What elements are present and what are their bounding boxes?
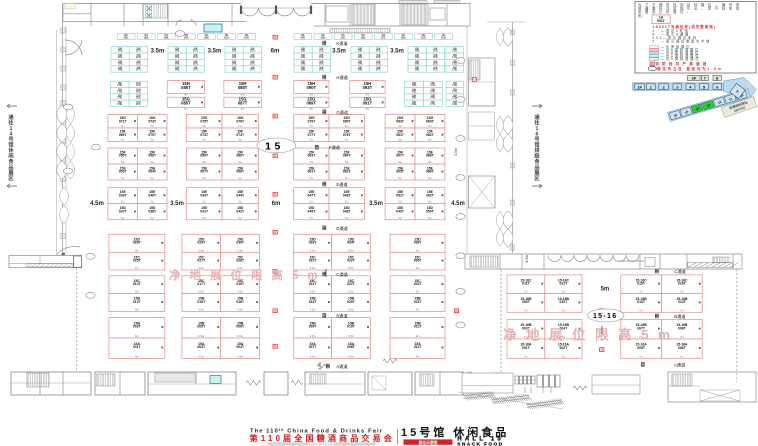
svg-text:7m: 7m: [524, 290, 528, 294]
svg-text:5m: 5m: [310, 124, 314, 128]
svg-text:7m: 7m: [680, 354, 684, 358]
svg-text:5m: 5m: [345, 160, 349, 164]
svg-text:038T: 038T: [148, 209, 157, 213]
svg-text:170L: 170L: [414, 51, 420, 53]
svg-text:174L: 174L: [175, 62, 181, 65]
svg-text:163L: 163L: [320, 37, 326, 39]
svg-text:H通道: H通道: [336, 74, 348, 81]
svg-text:009T: 009T: [309, 325, 318, 329]
svg-text:5m: 5m: [398, 200, 402, 204]
svg-text:045T: 045T: [308, 209, 317, 213]
svg-text:6.5m: 6.5m: [237, 290, 243, 294]
svg-text:189L: 189L: [204, 37, 210, 39]
svg-text:031T: 031T: [309, 259, 318, 263]
svg-text:7m: 7m: [524, 354, 528, 358]
svg-text:A通道: A通道: [674, 362, 686, 369]
svg-text:消防栓井严禁遮挡: 消防栓井严禁遮挡: [655, 61, 709, 66]
svg-text:026T: 026T: [133, 241, 142, 245]
svg-text:5m: 5m: [345, 138, 349, 142]
svg-text:净地展位限高5m: 净地展位限高5m: [169, 268, 327, 282]
svg-text:5m: 5m: [398, 124, 402, 128]
svg-text:6m: 6m: [241, 92, 245, 96]
svg-text:9m: 9m: [416, 334, 420, 338]
svg-text:036T: 036T: [414, 241, 423, 245]
svg-text:176L: 176L: [117, 104, 123, 106]
svg-text:079T: 079T: [308, 119, 317, 123]
svg-text:041T: 041T: [200, 209, 209, 213]
svg-text:6m: 6m: [202, 124, 206, 128]
svg-text:3.5m: 3.5m: [208, 49, 222, 55]
svg-text:6.5m: 6.5m: [310, 248, 316, 252]
svg-text:083T: 083T: [396, 119, 405, 123]
svg-text:044T: 044T: [236, 193, 245, 197]
svg-text:049T: 049T: [396, 209, 405, 213]
svg-text:181L: 181L: [123, 37, 129, 39]
svg-text:082T: 082T: [426, 133, 435, 137]
svg-text:9m: 9m: [135, 355, 139, 359]
svg-text:9m: 9m: [135, 290, 139, 294]
svg-text:042T: 042T: [236, 209, 245, 213]
svg-text:净地展位限高5m: 净地展位限高5m: [503, 327, 680, 343]
svg-text:6m: 6m: [366, 92, 370, 96]
svg-text:9m: 9m: [416, 248, 420, 252]
svg-text:053T: 053T: [119, 170, 128, 174]
svg-text:085T: 085T: [181, 101, 191, 106]
svg-text:176L: 176L: [175, 70, 181, 72]
svg-text:7m: 7m: [562, 290, 566, 294]
svg-text:C通道: C通道: [336, 271, 348, 278]
svg-text:9m: 9m: [416, 355, 420, 359]
svg-text:6m: 6m: [272, 201, 281, 207]
svg-text:173L: 173L: [136, 91, 142, 93]
svg-text:173L: 173L: [376, 57, 382, 59]
svg-text:009T: 009T: [522, 300, 531, 304]
svg-text:7m: 7m: [562, 308, 566, 312]
svg-text:176L: 176L: [300, 70, 306, 72]
svg-text:173L: 173L: [136, 57, 142, 59]
svg-text:002T: 002T: [133, 325, 142, 329]
svg-text:6.5m: 6.5m: [310, 355, 316, 359]
svg-text:5m: 5m: [121, 138, 125, 142]
svg-text:173L: 173L: [319, 57, 325, 59]
svg-text:174L: 174L: [357, 62, 363, 65]
svg-text:075T: 075T: [200, 119, 209, 123]
svg-text:176L: 176L: [411, 104, 417, 106]
svg-text:183L: 183L: [144, 37, 150, 39]
svg-text:091T: 091T: [363, 101, 373, 106]
svg-text:175L: 175L: [430, 98, 436, 100]
svg-text:3.5m: 3.5m: [454, 148, 458, 156]
svg-text:039T: 039T: [119, 193, 128, 197]
svg-text:051T: 051T: [396, 193, 405, 197]
svg-text:6.5m: 6.5m: [237, 334, 243, 338]
svg-text:6.5m: 6.5m: [348, 290, 354, 294]
svg-text:012T: 012T: [414, 325, 423, 329]
svg-text:5m: 5m: [150, 200, 154, 204]
svg-text:011T: 011T: [414, 345, 422, 349]
svg-text:172L: 172L: [300, 57, 306, 59]
svg-text:172L: 172L: [357, 57, 363, 59]
svg-text:172L: 172L: [118, 57, 124, 59]
svg-text:6.5m: 6.5m: [198, 248, 204, 252]
svg-text:C通道: C通道: [674, 268, 686, 275]
svg-text:170L: 170L: [452, 51, 458, 53]
svg-text:177L: 177L: [430, 104, 436, 106]
svg-text:173L: 173L: [433, 57, 439, 59]
svg-text:6m: 6m: [271, 49, 280, 55]
svg-text:054T: 054T: [148, 170, 157, 174]
svg-text:171L: 171L: [193, 51, 199, 53]
svg-text:7m: 7m: [680, 308, 684, 312]
svg-text:069T: 069T: [119, 133, 128, 137]
svg-text:176L: 176L: [118, 70, 124, 72]
svg-text:5m: 5m: [150, 124, 154, 128]
svg-text:7m: 7m: [639, 354, 643, 358]
svg-text:7m: 7m: [639, 290, 643, 294]
svg-text:6m: 6m: [202, 138, 206, 142]
svg-text:175L: 175L: [193, 63, 199, 65]
svg-text:展位内立柱 直径均为1.5m: 展位内立柱 直径均为1.5m: [656, 66, 723, 71]
svg-text:089T: 089T: [307, 101, 317, 106]
svg-text:001T: 001T: [657, 19, 665, 23]
svg-text:023T: 023T: [414, 300, 423, 304]
svg-text:055T: 055T: [119, 154, 128, 158]
svg-text:012T: 012T: [560, 282, 569, 286]
svg-text:024T: 024T: [414, 282, 423, 286]
svg-text:177L: 177L: [193, 70, 199, 72]
svg-text:090T: 090T: [307, 85, 317, 90]
svg-text:172L: 172L: [175, 57, 181, 59]
svg-text:056T: 056T: [148, 154, 157, 158]
svg-text:6m: 6m: [184, 107, 188, 111]
svg-text:153L: 153L: [421, 37, 427, 39]
svg-text:071T: 071T: [119, 119, 128, 123]
svg-text:9m: 9m: [416, 266, 420, 270]
svg-text:6m: 6m: [366, 107, 370, 111]
svg-text:001T: 001T: [522, 346, 531, 350]
svg-text:5m: 5m: [121, 200, 125, 204]
svg-text:177L: 177L: [433, 70, 439, 72]
svg-text:067T: 067T: [396, 154, 405, 158]
svg-text:5m: 5m: [345, 124, 349, 128]
svg-text:016T: 016T: [678, 282, 687, 286]
svg-text:177L: 177L: [136, 70, 142, 72]
svg-text:170L: 170L: [300, 51, 306, 53]
svg-text:062T: 062T: [343, 170, 352, 174]
svg-text:5m: 5m: [310, 160, 314, 164]
svg-text:013T: 013T: [133, 300, 142, 304]
svg-text:177L: 177L: [250, 70, 256, 72]
svg-text:171L: 171L: [433, 51, 439, 53]
svg-text:3.5m: 3.5m: [369, 201, 383, 207]
svg-text:080T: 080T: [343, 119, 352, 123]
svg-text:022T: 022T: [347, 282, 356, 286]
svg-text:174L: 174L: [232, 62, 238, 65]
svg-text:077T: 077T: [308, 133, 317, 137]
svg-text:173L: 173L: [193, 57, 199, 59]
svg-text:6.5m: 6.5m: [348, 248, 354, 252]
svg-text:047T: 047T: [308, 193, 317, 197]
svg-text:019T: 019T: [309, 300, 318, 304]
svg-text:6m: 6m: [202, 200, 206, 204]
svg-text:4.5m: 4.5m: [318, 362, 322, 370]
svg-text:174L: 174L: [118, 62, 124, 65]
svg-text:187L: 187L: [184, 37, 190, 39]
svg-text:3.5m: 3.5m: [324, 269, 328, 277]
svg-text:3.5m: 3.5m: [151, 49, 165, 55]
svg-text:5m: 5m: [428, 216, 432, 220]
svg-text:6m: 6m: [202, 216, 206, 220]
svg-text:175L: 175L: [376, 63, 382, 65]
svg-text:048T: 048T: [343, 193, 352, 197]
svg-text:175L: 175L: [433, 63, 439, 65]
svg-text:5m: 5m: [150, 160, 154, 164]
svg-text:191L: 191L: [224, 37, 230, 39]
svg-text:1F: 1F: [637, 84, 642, 89]
svg-text:B通道: B通道: [336, 313, 348, 320]
svg-text:T —表示展位类型为半地: T —表示展位类型为半地: [652, 39, 711, 44]
svg-text:4.5m: 4.5m: [451, 201, 465, 207]
svg-text:060T: 060T: [236, 154, 245, 158]
svg-text:区: 区: [8, 174, 14, 182]
svg-text:174L: 174L: [300, 62, 306, 65]
svg-text:185L: 185L: [164, 37, 170, 39]
svg-text:177L: 177L: [136, 104, 142, 106]
svg-text:5m: 5m: [121, 160, 125, 164]
svg-text:176L: 176L: [357, 70, 363, 72]
svg-text:171L: 171L: [136, 85, 142, 87]
svg-text:029T: 029T: [197, 241, 206, 245]
svg-text:7m: 7m: [524, 308, 528, 312]
svg-text:5m: 5m: [428, 160, 432, 164]
svg-text:015T: 015T: [197, 300, 206, 304]
svg-text:5m: 5m: [310, 216, 314, 220]
svg-text:171L: 171L: [319, 51, 325, 53]
svg-text:015T: 015T: [637, 282, 646, 286]
svg-text:052T: 052T: [426, 193, 435, 197]
svg-text:175L: 175L: [136, 98, 142, 100]
svg-text:193L: 193L: [244, 37, 250, 39]
svg-text:6.5m: 6.5m: [237, 248, 243, 252]
svg-text:区: 区: [534, 174, 540, 182]
svg-text:6.5m: 6.5m: [198, 334, 204, 338]
svg-text:059T: 059T: [200, 154, 209, 158]
svg-text:010T: 010T: [347, 325, 356, 329]
svg-text:9m: 9m: [416, 308, 420, 312]
svg-text:5m: 5m: [310, 176, 314, 180]
svg-text:3.5m: 3.5m: [390, 49, 404, 55]
svg-text:5m: 5m: [345, 216, 349, 220]
svg-text:174L: 174L: [117, 97, 123, 100]
svg-text:9m: 9m: [135, 248, 139, 252]
svg-text:006T: 006T: [678, 346, 687, 350]
svg-text:011T: 011T: [522, 282, 530, 286]
svg-text:—为D类标准展位: —为D类标准展位: [661, 56, 701, 61]
svg-text:7m: 7m: [562, 354, 566, 358]
svg-text:G通道: G通道: [336, 109, 348, 116]
svg-text:018T: 018T: [236, 282, 245, 286]
svg-text:6.5m: 6.5m: [310, 308, 316, 312]
svg-text:177L: 177L: [319, 70, 325, 72]
svg-text:070T: 070T: [148, 133, 157, 137]
svg-text:5m: 5m: [398, 160, 402, 164]
svg-text:171L: 171L: [250, 51, 256, 53]
svg-text:A通道: A通道: [336, 363, 348, 370]
svg-text:E通道: E通道: [336, 181, 348, 188]
svg-text:6.5m: 6.5m: [198, 355, 204, 359]
svg-text:6m: 6m: [184, 92, 188, 96]
svg-text:6m: 6m: [238, 200, 242, 204]
svg-text:7m: 7m: [680, 335, 684, 339]
svg-text:066T: 066T: [426, 170, 435, 174]
svg-text:084T: 084T: [426, 119, 435, 123]
svg-text:5m: 5m: [345, 176, 349, 180]
svg-text:165L: 165L: [300, 37, 306, 39]
svg-text:SNACK FOOD: SNACK FOOD: [457, 442, 503, 446]
svg-text:172L: 172L: [452, 63, 458, 65]
svg-text:6m: 6m: [309, 92, 313, 96]
svg-text:025T: 025T: [133, 259, 142, 263]
svg-text:064T: 064T: [343, 154, 352, 158]
svg-text:035T: 035T: [414, 259, 423, 263]
svg-text:6m: 6m: [202, 176, 206, 180]
svg-text:065T: 065T: [396, 170, 405, 174]
svg-text:6.5m: 6.5m: [348, 334, 354, 338]
svg-text:034T: 034T: [347, 241, 356, 245]
svg-text:174L: 174L: [411, 97, 417, 100]
svg-text:173L: 173L: [250, 57, 256, 59]
svg-text:172L: 172L: [411, 91, 417, 93]
svg-text:088T: 088T: [238, 85, 248, 90]
svg-text:D通道: D通道: [336, 225, 348, 232]
svg-text:171L: 171L: [430, 85, 436, 87]
svg-text:5m: 5m: [150, 138, 154, 142]
svg-text:K通道: K通道: [336, 40, 348, 47]
svg-text:5m: 5m: [398, 176, 402, 180]
svg-text:6.5m: 6.5m: [348, 355, 354, 359]
svg-text:172L: 172L: [232, 57, 238, 59]
svg-text:005T: 005T: [197, 325, 206, 329]
svg-text:177L: 177L: [376, 70, 382, 72]
svg-text:170L: 170L: [175, 51, 181, 53]
svg-text:5m: 5m: [398, 216, 402, 220]
svg-text:5m: 5m: [121, 124, 125, 128]
svg-text:5m: 5m: [310, 138, 314, 142]
svg-text:3.5m: 3.5m: [170, 201, 184, 207]
svg-text:004T: 004T: [236, 345, 245, 349]
svg-text:6.5m: 6.5m: [310, 334, 316, 338]
svg-text:006T: 006T: [236, 325, 245, 329]
svg-text:175L: 175L: [250, 63, 256, 65]
svg-text:5m: 5m: [345, 200, 349, 204]
svg-text:093T: 093T: [363, 85, 373, 90]
svg-text:175L: 175L: [319, 63, 325, 65]
svg-text:173L: 173L: [430, 91, 436, 93]
svg-text:170L: 170L: [232, 51, 238, 53]
svg-text:中国西部国际博览城: 中国西部国际博览城: [307, 441, 334, 446]
svg-text:3.5m: 3.5m: [332, 49, 346, 55]
svg-text:074T: 074T: [236, 133, 245, 137]
svg-text:061T: 061T: [308, 170, 317, 174]
svg-text:076T: 076T: [236, 119, 245, 123]
svg-text:9m: 9m: [135, 308, 139, 312]
svg-text:032T: 032T: [347, 259, 356, 263]
svg-text:4.5m: 4.5m: [90, 201, 104, 207]
svg-text:170L: 170L: [117, 85, 123, 87]
svg-text:173L: 173L: [452, 70, 458, 72]
svg-text:6m: 6m: [238, 160, 242, 164]
svg-text:151L: 151L: [441, 37, 447, 39]
svg-text:6m: 6m: [309, 107, 313, 111]
svg-text:155L: 155L: [401, 37, 407, 39]
svg-text:008T: 008T: [347, 345, 356, 349]
svg-text:9m: 9m: [416, 290, 420, 294]
svg-text:到要到达的展位。: 到要到达的展位。: [638, 9, 694, 14]
svg-text:5m: 5m: [428, 138, 432, 142]
svg-text:046T: 046T: [343, 209, 352, 213]
svg-text:172L: 172L: [414, 57, 420, 59]
svg-text:057T: 057T: [200, 170, 209, 174]
svg-text:5m: 5m: [121, 216, 125, 220]
svg-text:159L: 159L: [361, 37, 367, 39]
svg-text:028T: 028T: [236, 259, 245, 263]
svg-text:020T: 020T: [347, 300, 356, 304]
svg-text:170L: 170L: [118, 51, 124, 53]
svg-text:6m: 6m: [238, 138, 242, 142]
svg-text:5m: 5m: [310, 200, 314, 204]
svg-text:9m: 9m: [135, 334, 139, 338]
svg-text:073T: 073T: [200, 133, 209, 137]
svg-text:030T: 030T: [236, 241, 245, 245]
svg-text:073T: 073T: [148, 119, 157, 123]
svg-text:078T: 078T: [343, 133, 352, 137]
svg-text:6m: 6m: [238, 124, 242, 128]
svg-text:001T: 001T: [133, 345, 142, 349]
svg-text:171L: 171L: [452, 91, 458, 93]
svg-text:4.5m: 4.5m: [525, 255, 529, 263]
svg-text:171L: 171L: [376, 51, 382, 53]
svg-text:010T: 010T: [560, 300, 569, 304]
svg-text:6m: 6m: [238, 216, 242, 220]
svg-text:6.5m: 6.5m: [198, 290, 204, 294]
svg-text:9m: 9m: [135, 266, 139, 270]
svg-text:027T: 027T: [197, 259, 206, 263]
svg-text:175L: 175L: [136, 63, 142, 65]
svg-text:081T: 081T: [396, 133, 405, 137]
svg-text:5m: 5m: [398, 138, 402, 142]
svg-text:043T: 043T: [200, 193, 209, 197]
svg-text:033T: 033T: [309, 241, 318, 245]
svg-text:5m: 5m: [428, 176, 432, 180]
svg-text:5m: 5m: [121, 176, 125, 180]
svg-text:037T: 037T: [119, 209, 128, 213]
svg-text:002T: 002T: [560, 346, 569, 350]
svg-text:6.5m: 6.5m: [237, 355, 243, 359]
svg-text:161L: 161L: [340, 37, 346, 39]
svg-text:6.5m: 6.5m: [198, 308, 204, 312]
svg-text:例：: 例：: [638, 13, 645, 18]
svg-text:063T: 063T: [308, 154, 317, 158]
svg-text:展位示意图: 展位示意图: [418, 440, 438, 445]
svg-text:007T: 007T: [309, 345, 318, 349]
svg-text:6m: 6m: [202, 160, 206, 164]
svg-text:173L: 173L: [452, 104, 458, 106]
svg-text:5m: 5m: [150, 216, 154, 220]
svg-text:5m: 5m: [150, 176, 154, 180]
svg-text:174L: 174L: [414, 62, 420, 65]
svg-text:172L: 172L: [117, 91, 123, 93]
svg-text:6.5m: 6.5m: [348, 266, 354, 270]
